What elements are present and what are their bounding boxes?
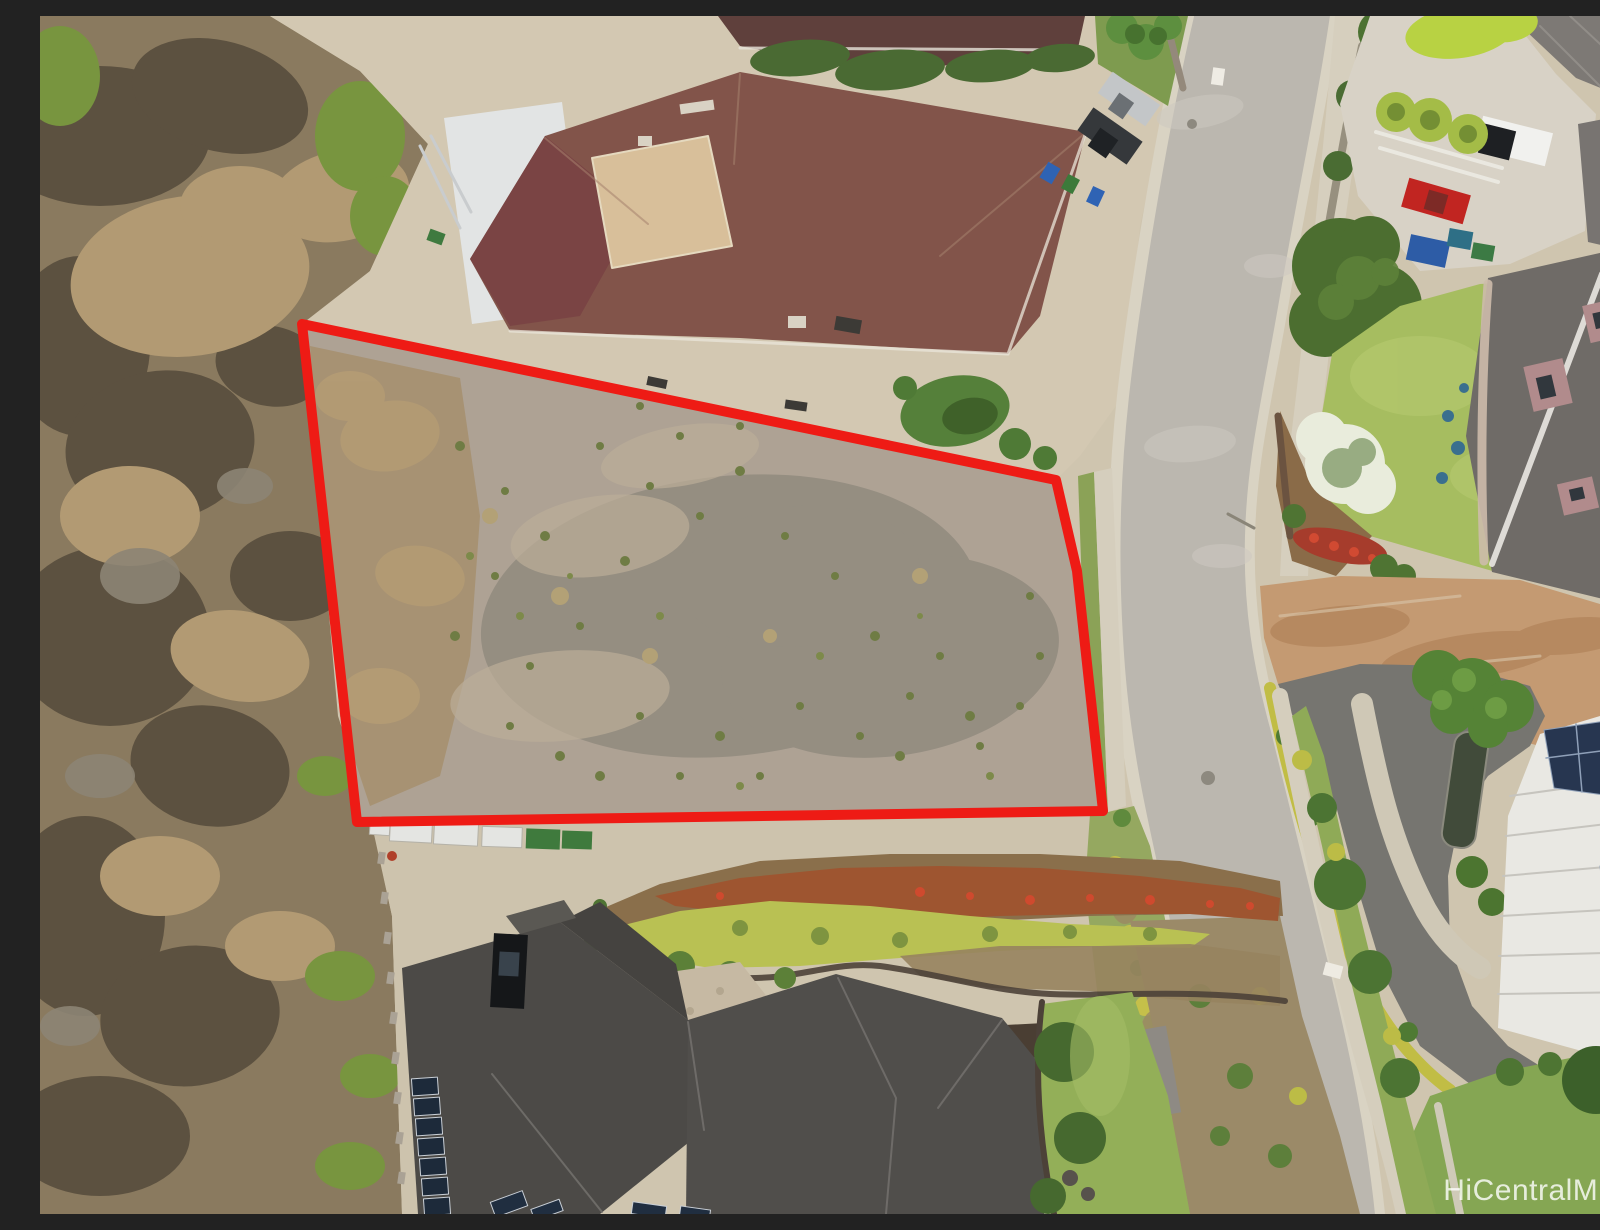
main-house-flat-roof bbox=[592, 136, 732, 268]
storage-containers-green bbox=[526, 828, 593, 849]
yard-red-item bbox=[387, 851, 397, 861]
mailbox-top bbox=[1211, 67, 1225, 86]
aerial-photograph: HiCentralMLS bbox=[40, 16, 1600, 1214]
mls-watermark: HiCentralMLS bbox=[1443, 1174, 1600, 1208]
aerial-scene-canvas bbox=[40, 16, 1600, 1214]
black-suv-glass bbox=[498, 951, 519, 976]
bottom-lawn-light bbox=[1070, 996, 1130, 1116]
